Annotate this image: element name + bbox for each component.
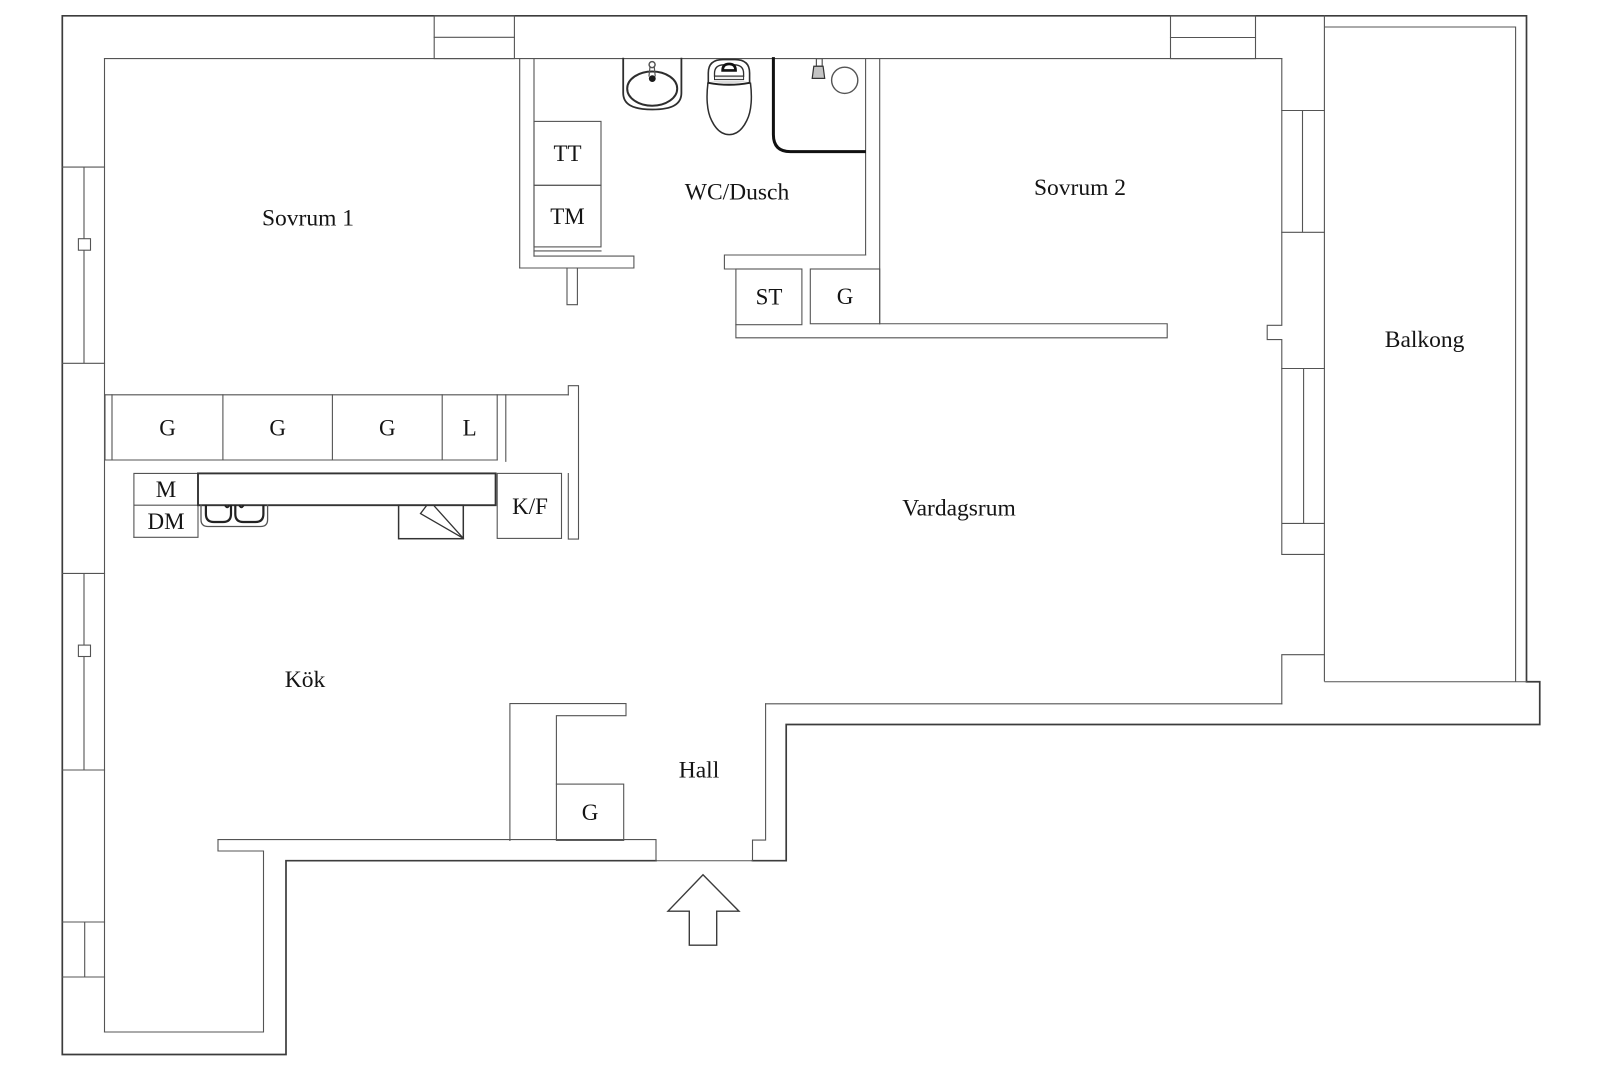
- svg-text:G: G: [582, 800, 599, 825]
- svg-text:Sovrum 1: Sovrum 1: [262, 206, 354, 232]
- svg-text:Sovrum 2: Sovrum 2: [1034, 175, 1126, 201]
- svg-text:G: G: [837, 284, 854, 309]
- svg-text:Balkong: Balkong: [1385, 327, 1465, 353]
- svg-text:K/F: K/F: [512, 494, 548, 519]
- svg-text:Hall: Hall: [679, 758, 720, 784]
- svg-text:TT: TT: [553, 141, 581, 166]
- svg-text:TM: TM: [550, 204, 585, 229]
- svg-text:Vardagsrum: Vardagsrum: [902, 496, 1016, 522]
- svg-text:G: G: [159, 416, 176, 441]
- svg-text:M: M: [156, 477, 176, 502]
- svg-text:G: G: [379, 416, 396, 441]
- svg-text:Kök: Kök: [285, 667, 326, 693]
- svg-text:ST: ST: [756, 285, 783, 310]
- svg-text:G: G: [269, 416, 286, 441]
- svg-text:L: L: [463, 416, 477, 441]
- svg-text:DM: DM: [147, 509, 184, 534]
- svg-text:WC/Dusch: WC/Dusch: [685, 180, 790, 206]
